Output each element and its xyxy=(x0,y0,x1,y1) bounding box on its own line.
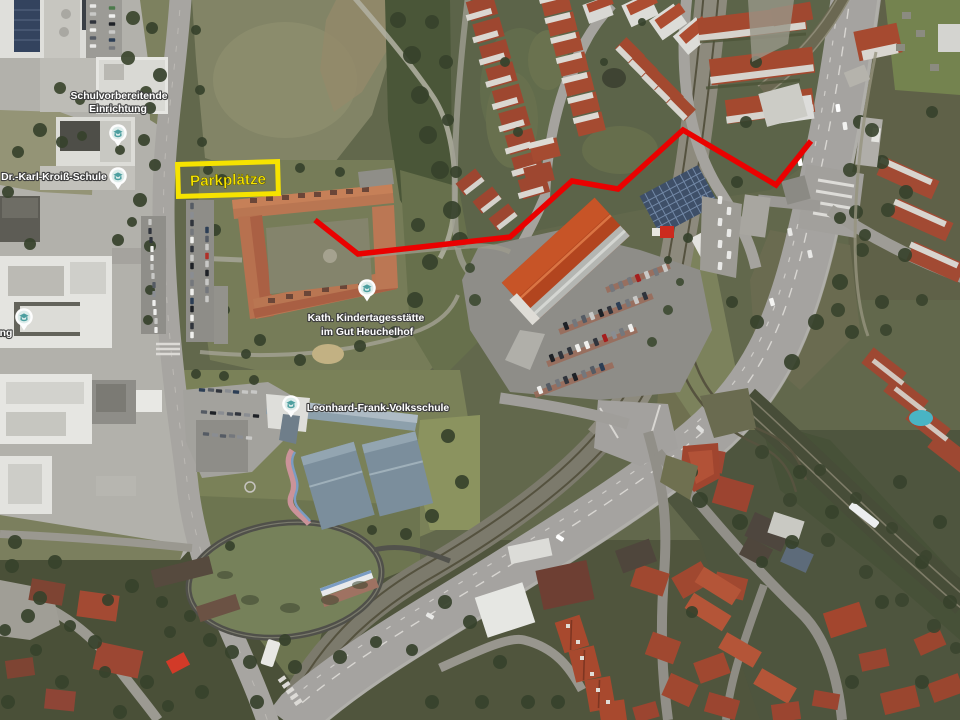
svg-text:im Gut Heuchelhof: im Gut Heuchelhof xyxy=(321,327,414,338)
svg-text:Kath. Kindertagesstätte: Kath. Kindertagesstätte xyxy=(308,313,425,324)
svg-text:Leonhard-Frank-Volksschule: Leonhard-Frank-Volksschule xyxy=(307,403,450,414)
svg-text:Schulvorbereitende: Schulvorbereitende xyxy=(70,91,167,102)
svg-text:Parkplätze: Parkplätze xyxy=(190,171,266,190)
svg-text:Dr.-Karl-Kroiß-Schule: Dr.-Karl-Kroiß-Schule xyxy=(1,172,107,183)
svg-text:ng: ng xyxy=(0,328,12,339)
svg-text:Einrichtung: Einrichtung xyxy=(89,104,147,115)
